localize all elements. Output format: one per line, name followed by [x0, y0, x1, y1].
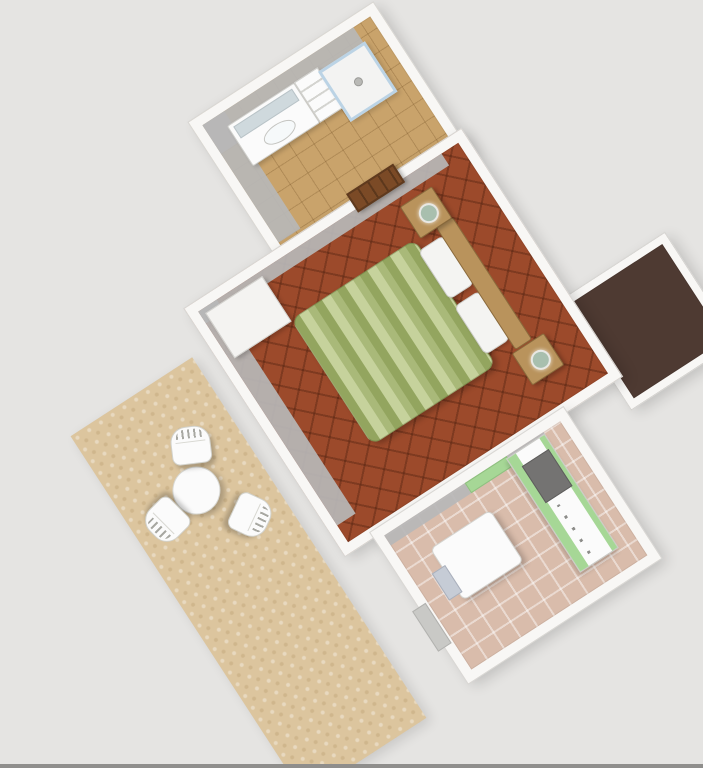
chair-slats: [175, 428, 204, 440]
bedroom-wardrobe: [205, 276, 291, 358]
image-bottom-border: [0, 764, 703, 768]
kitchen-stove-inset: [522, 449, 573, 503]
floor-plan-image: [0, 0, 703, 768]
patio-chair-right: [225, 490, 276, 542]
floor-plan-scene: [0, 0, 703, 768]
chair-slats: [145, 516, 171, 542]
patio-chair-top: [169, 424, 213, 467]
chair-slats: [251, 506, 271, 535]
nightstand-lamp: [527, 346, 555, 374]
kitchen-cabinet-run: [506, 434, 619, 573]
double-bed: [293, 220, 529, 441]
shower-drain: [352, 76, 364, 88]
chair-seat-line: [175, 439, 205, 444]
nightstand-lamp: [415, 199, 443, 227]
